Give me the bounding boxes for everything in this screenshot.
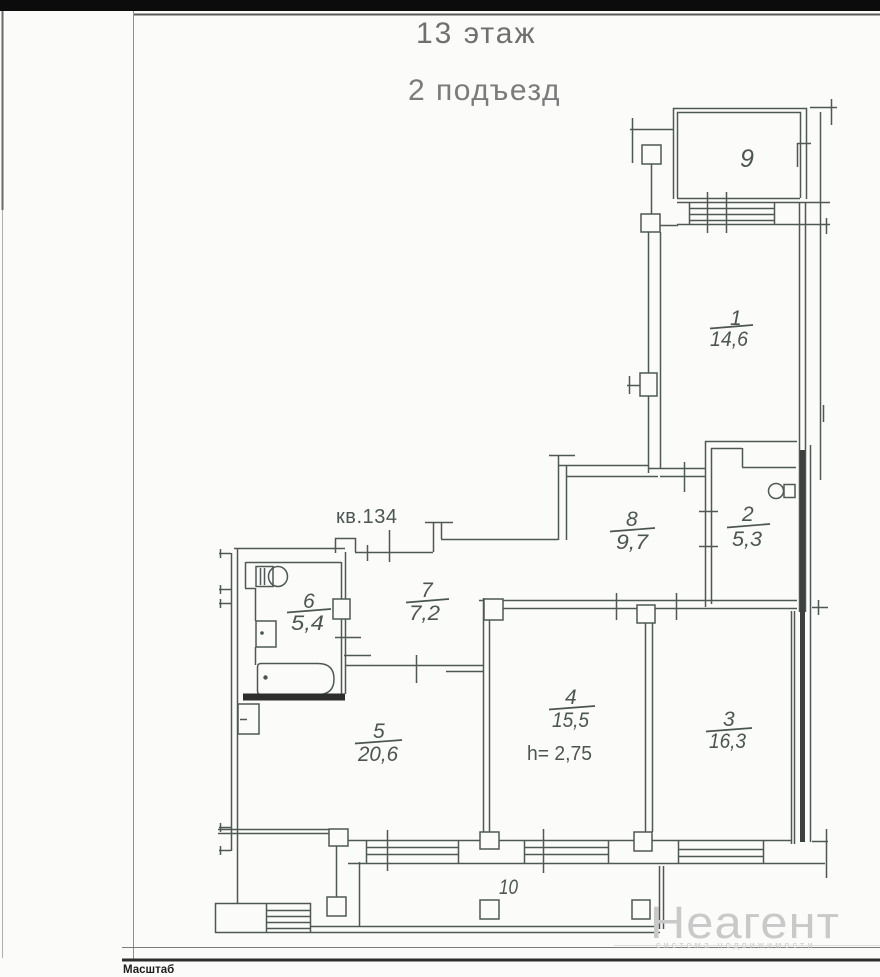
svg-text:13 этаж: 13 этаж	[416, 17, 537, 50]
svg-text:9: 9	[740, 145, 754, 173]
svg-text:6: 6	[303, 590, 315, 613]
svg-text:5: 5	[373, 720, 385, 743]
svg-text:7,2: 7,2	[409, 602, 440, 625]
svg-text:7: 7	[421, 579, 434, 602]
svg-text:10: 10	[499, 876, 518, 899]
svg-text:5,3: 5,3	[732, 528, 762, 551]
svg-text:9,7: 9,7	[616, 531, 649, 554]
svg-text:14,6: 14,6	[710, 328, 748, 351]
svg-text:кв.134: кв.134	[336, 506, 397, 528]
svg-text:h= 2,75: h= 2,75	[527, 743, 592, 765]
svg-text:20,6: 20,6	[357, 743, 398, 766]
svg-text:Масштаб: Масштаб	[123, 964, 174, 976]
svg-text:5,4: 5,4	[291, 612, 324, 635]
svg-text:4: 4	[565, 686, 577, 709]
svg-text:16,3: 16,3	[709, 730, 746, 753]
svg-text:8: 8	[626, 508, 638, 531]
svg-text:2 подъезд: 2 подъезд	[408, 74, 561, 107]
svg-text:15,5: 15,5	[552, 709, 589, 732]
svg-text:3: 3	[723, 708, 735, 731]
svg-text:2: 2	[741, 503, 754, 526]
